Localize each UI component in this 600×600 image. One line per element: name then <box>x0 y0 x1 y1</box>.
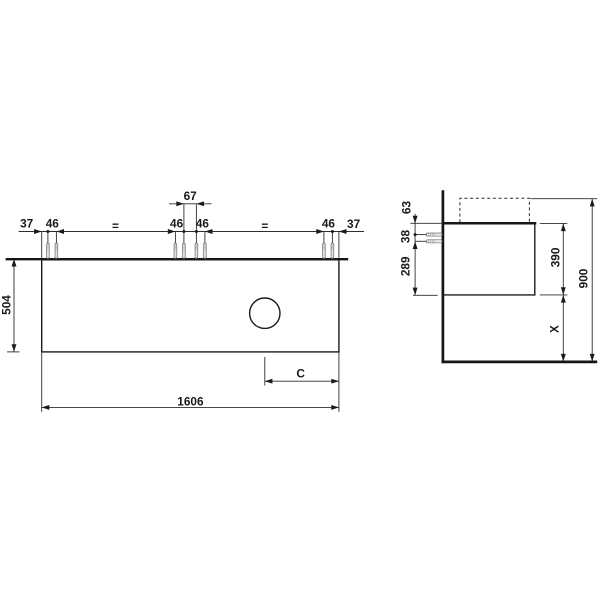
svg-text:38: 38 <box>398 230 412 244</box>
svg-text:=: = <box>112 219 119 233</box>
svg-text:900: 900 <box>577 268 591 288</box>
svg-text:289: 289 <box>398 256 412 276</box>
svg-text:X: X <box>548 325 562 333</box>
svg-text:46: 46 <box>196 216 210 230</box>
svg-text:1606: 1606 <box>177 395 204 409</box>
svg-text:46: 46 <box>170 216 184 230</box>
svg-text:504: 504 <box>0 295 14 315</box>
svg-text:C: C <box>296 367 305 381</box>
svg-text:67: 67 <box>184 189 198 203</box>
svg-text:37: 37 <box>20 216 34 230</box>
svg-text:=: = <box>261 219 268 233</box>
svg-text:46: 46 <box>46 216 60 230</box>
svg-text:37: 37 <box>347 217 361 231</box>
svg-text:46: 46 <box>322 216 336 230</box>
svg-text:390: 390 <box>549 247 563 267</box>
svg-text:63: 63 <box>400 201 414 215</box>
